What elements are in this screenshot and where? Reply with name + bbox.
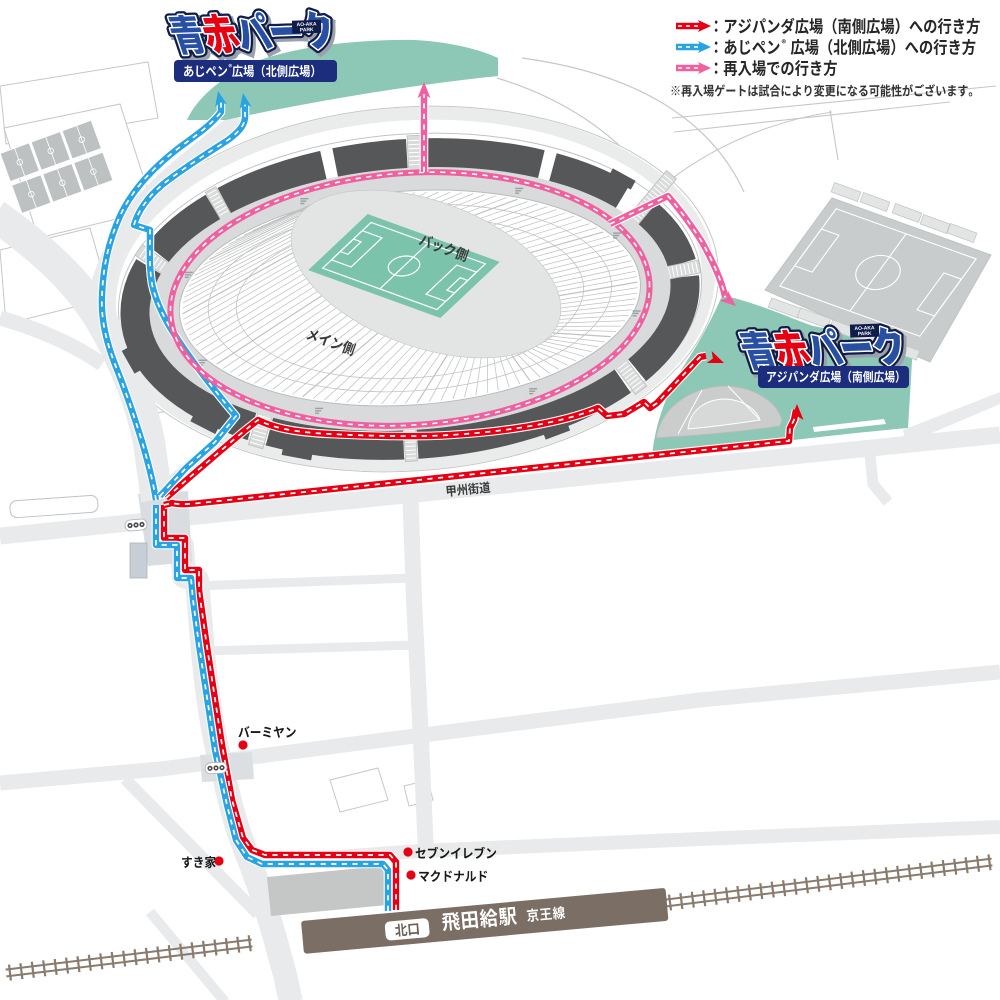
svg-text:PARK: PARK — [300, 27, 314, 33]
svg-text:PARK: PARK — [858, 331, 872, 337]
